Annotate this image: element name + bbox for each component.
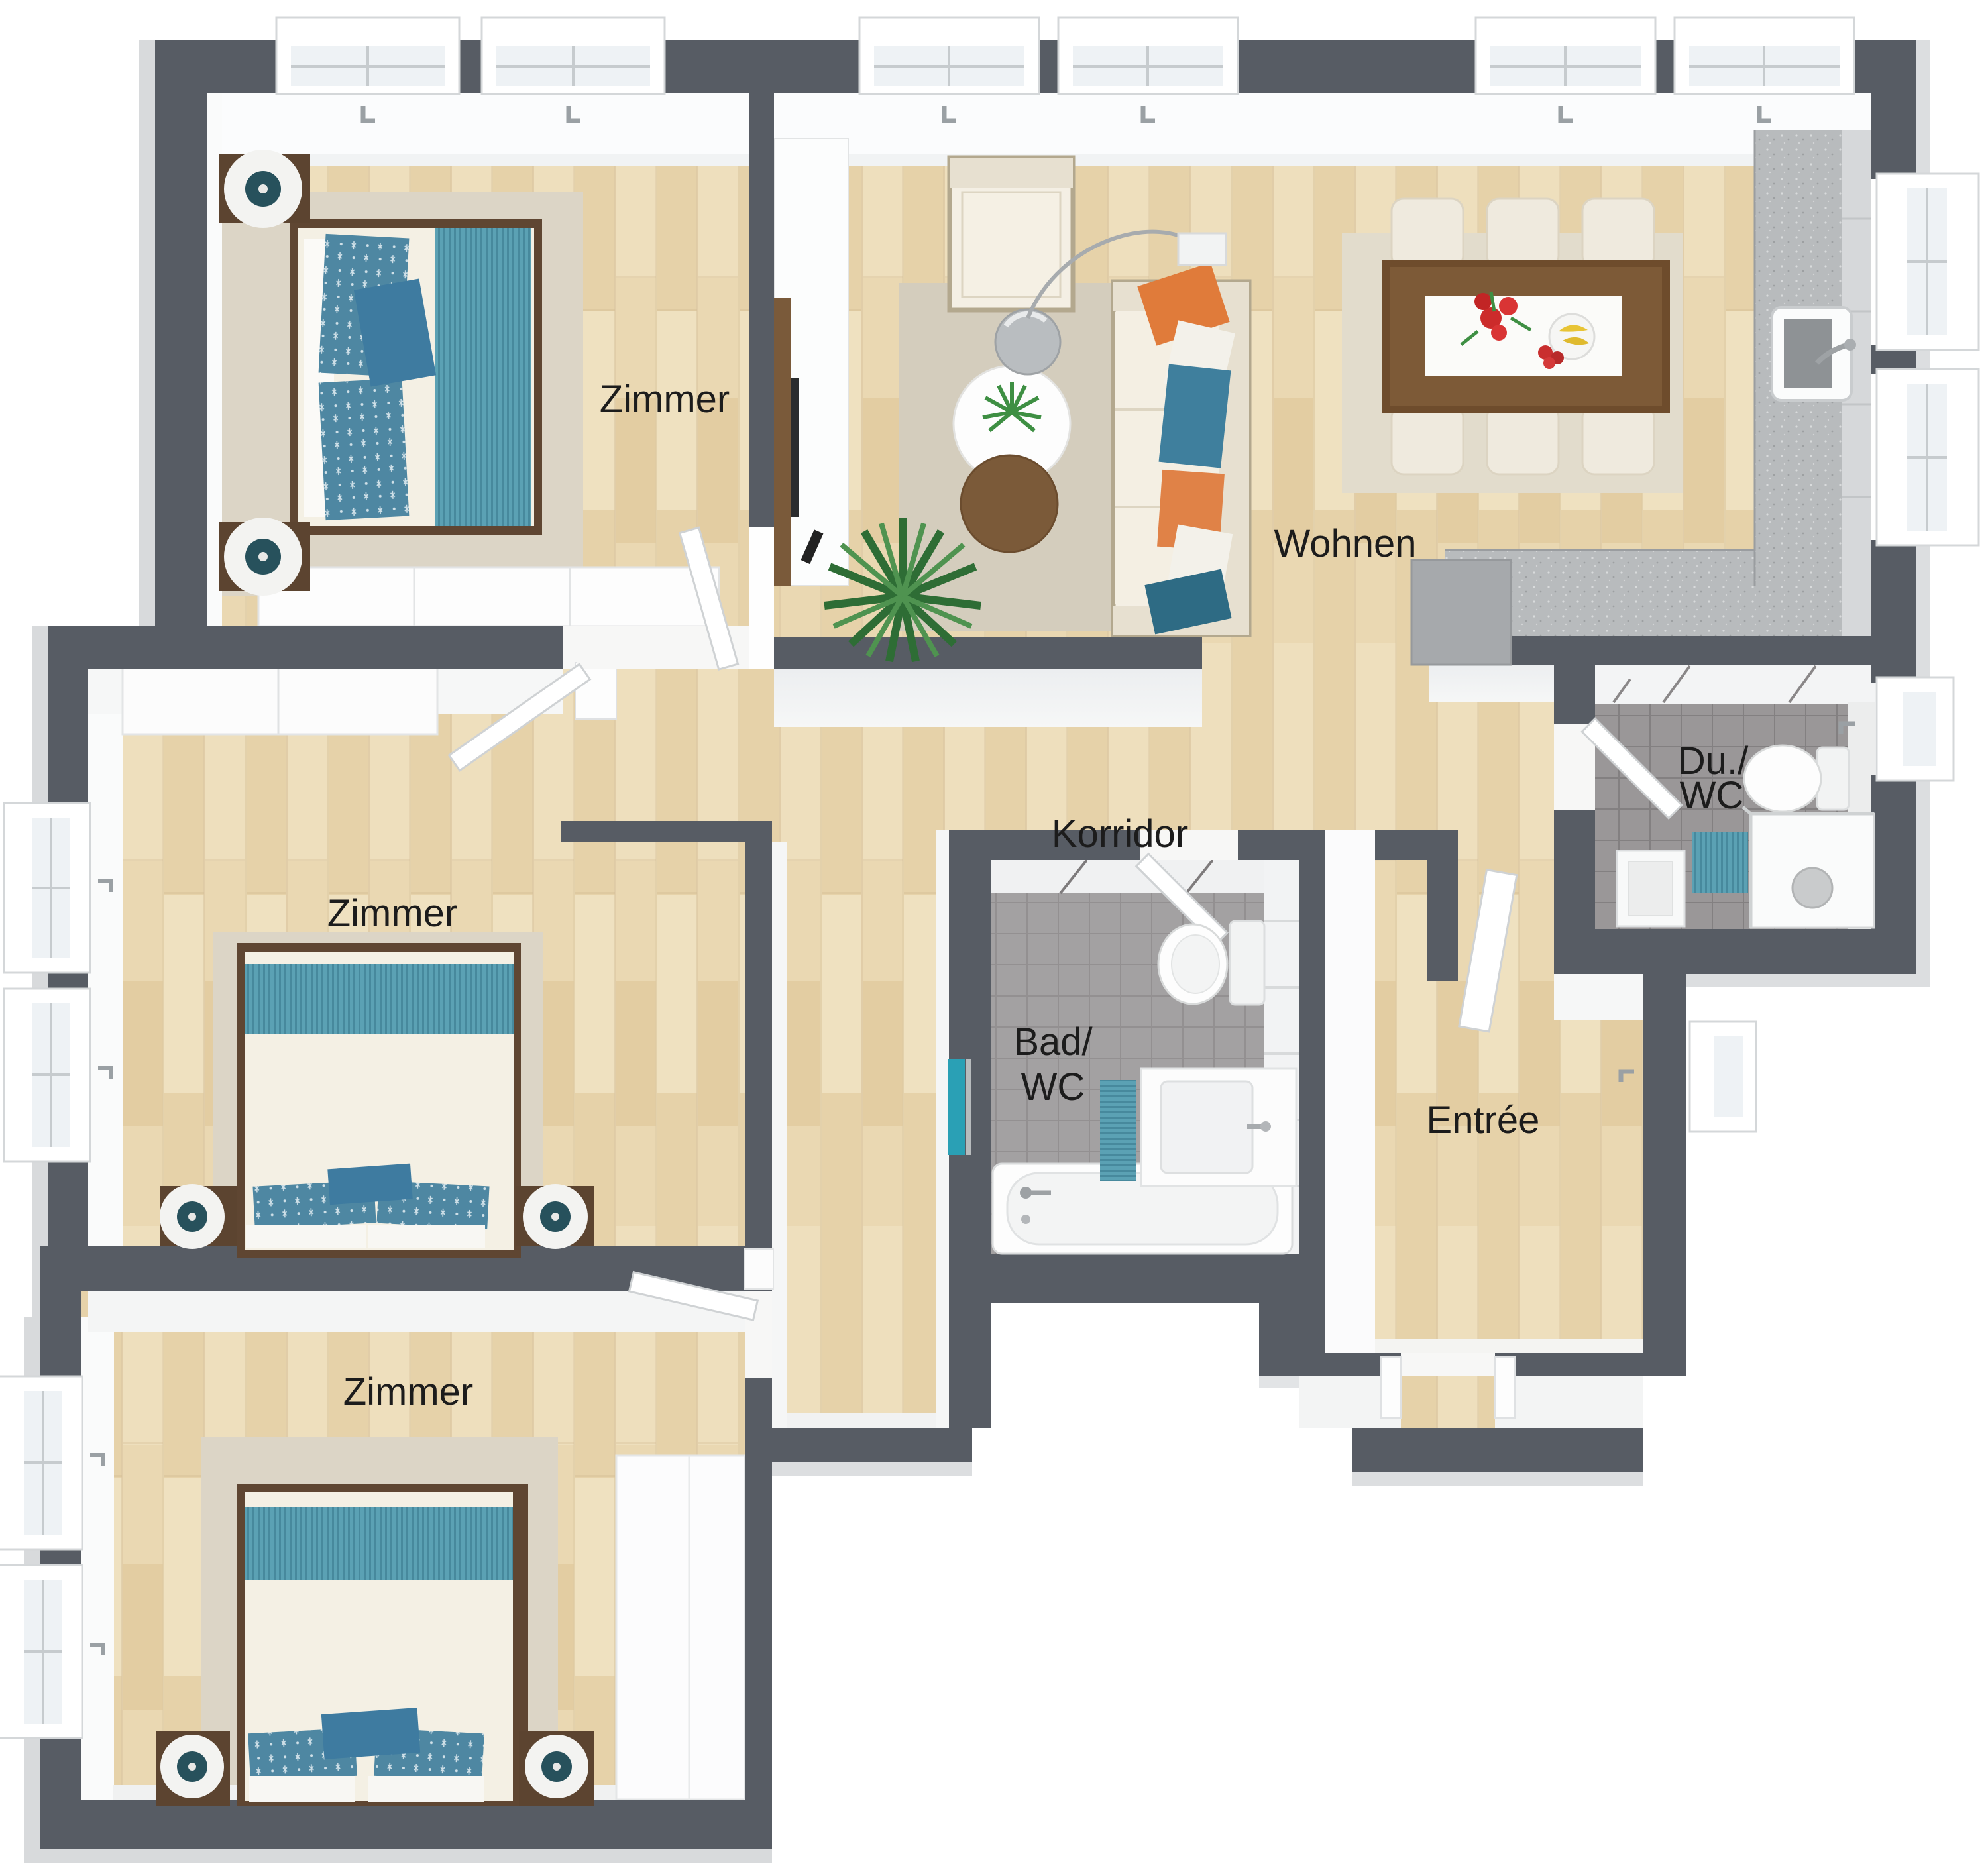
svg-text:Zimmer: Zimmer xyxy=(343,1370,474,1413)
svg-text:Entrée: Entrée xyxy=(1427,1099,1540,1142)
svg-text:WC: WC xyxy=(1021,1066,1085,1109)
svg-text:Korridor: Korridor xyxy=(1052,812,1188,855)
svg-text:Bad/: Bad/ xyxy=(1013,1020,1093,1064)
svg-text:Zimmer: Zimmer xyxy=(600,378,730,421)
svg-text:WC: WC xyxy=(1680,774,1744,817)
svg-text:Zimmer: Zimmer xyxy=(327,892,458,935)
svg-text:Wohnen: Wohnen xyxy=(1274,522,1417,565)
